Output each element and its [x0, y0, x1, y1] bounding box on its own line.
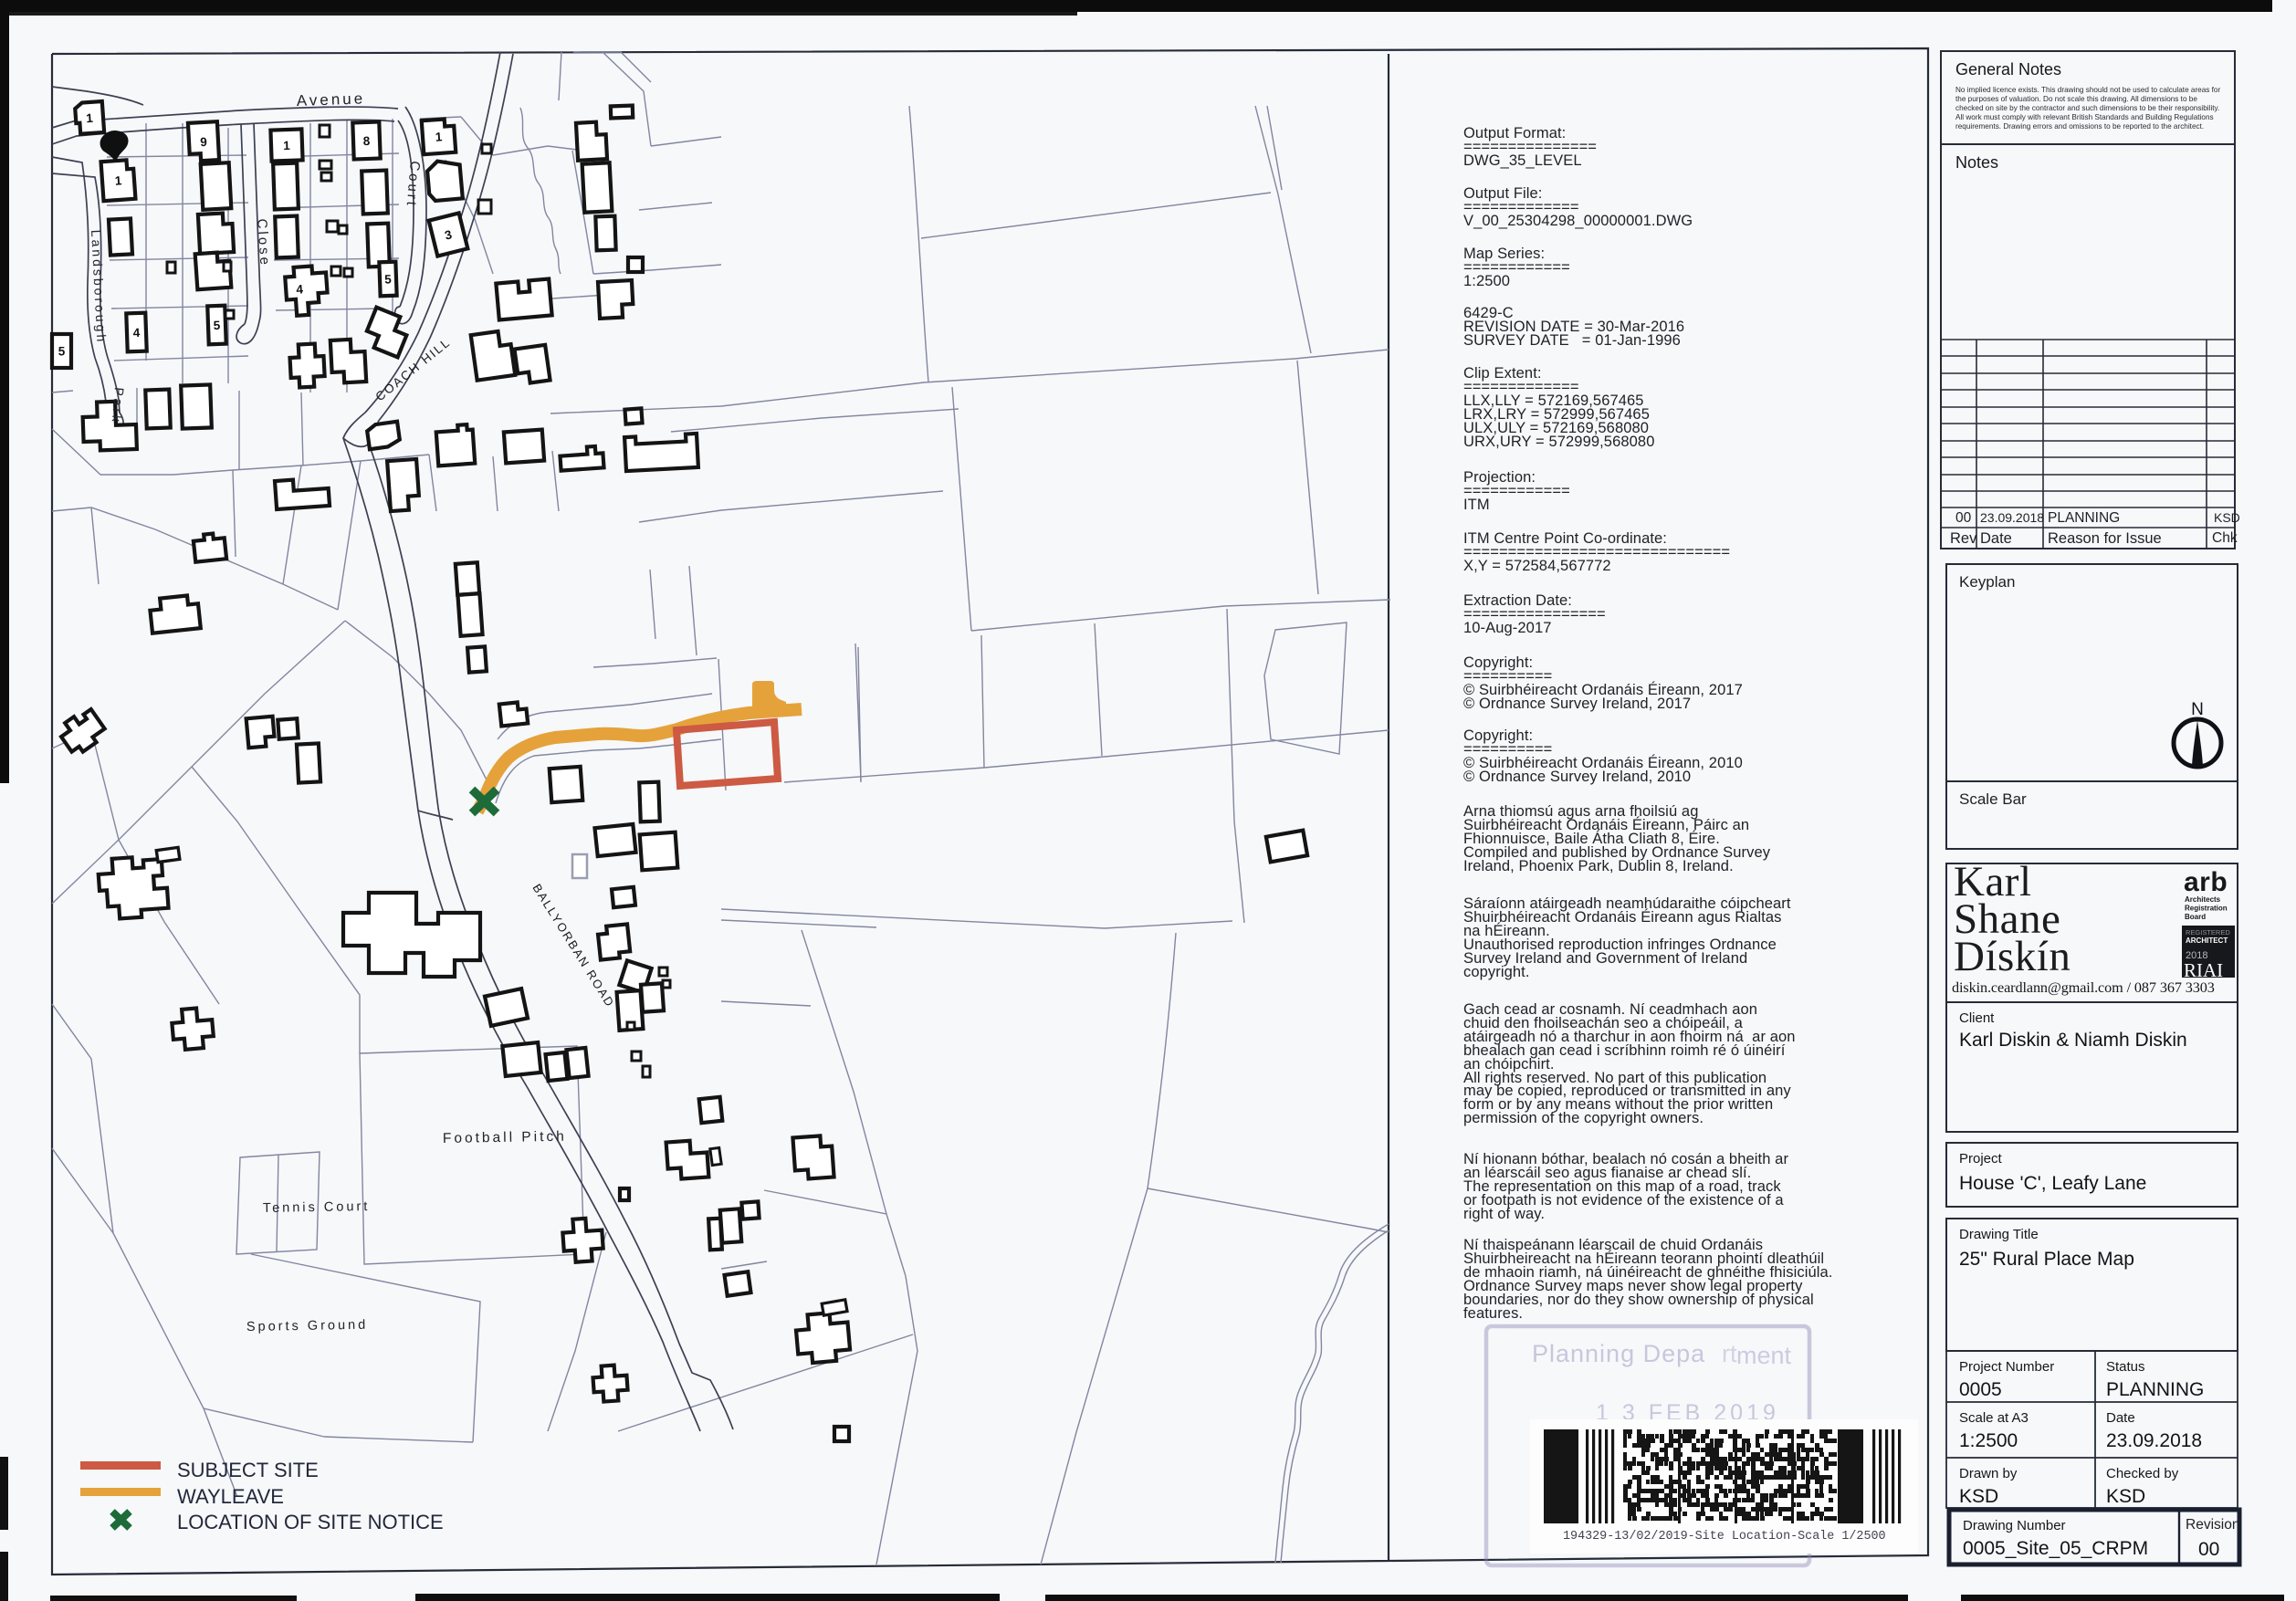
svg-text:Football Pitch: Football Pitch [443, 1129, 567, 1146]
svg-text:Planning Depa: Planning Depa [1532, 1340, 1705, 1367]
svg-text:REGISTERED: REGISTERED [2186, 928, 2230, 937]
svg-text:WAYLEAVE: WAYLEAVE [177, 1485, 284, 1508]
svg-text:5: 5 [214, 319, 222, 332]
svg-text:rt: rt [1722, 1340, 1737, 1367]
svg-text:4: 4 [133, 326, 142, 340]
svg-text:5: 5 [384, 272, 393, 286]
svg-text:8: 8 [363, 134, 372, 148]
svg-text:Registration: Registration [2185, 905, 2228, 913]
svg-text:LOCATION OF SITE NOTICE: LOCATION OF SITE NOTICE [177, 1511, 444, 1533]
svg-text:5: 5 [58, 345, 66, 359]
svg-text:RIAI: RIAI [2184, 959, 2223, 981]
svg-text:arb: arb [2184, 867, 2228, 897]
svg-text:194329-13/02/2019-Site Locatio: 194329-13/02/2019-Site Location-Scale 1/… [1563, 1530, 1886, 1543]
svg-text:Close: Close [254, 218, 273, 267]
svg-text:9: 9 [200, 135, 207, 149]
svg-text:ment: ment [1736, 1342, 1792, 1369]
svg-text:Court: Court [404, 161, 423, 209]
svg-text:N: N [2191, 700, 2204, 719]
svg-text:Landsborough: Landsborough [89, 229, 110, 344]
svg-text:SUBJECT SITE: SUBJECT SITE [177, 1459, 319, 1481]
svg-text:Board: Board [2185, 913, 2206, 921]
svg-text:Sports Ground: Sports Ground [246, 1318, 369, 1334]
svg-text:1: 1 [283, 139, 291, 152]
svg-text:Avenue: Avenue [296, 89, 365, 110]
svg-text:Park: Park [109, 387, 126, 425]
svg-text:Architects: Architects [2185, 895, 2221, 904]
svg-text:Tennis Court: Tennis Court [263, 1199, 371, 1216]
svg-text:ARCHITECT: ARCHITECT [2186, 937, 2228, 945]
